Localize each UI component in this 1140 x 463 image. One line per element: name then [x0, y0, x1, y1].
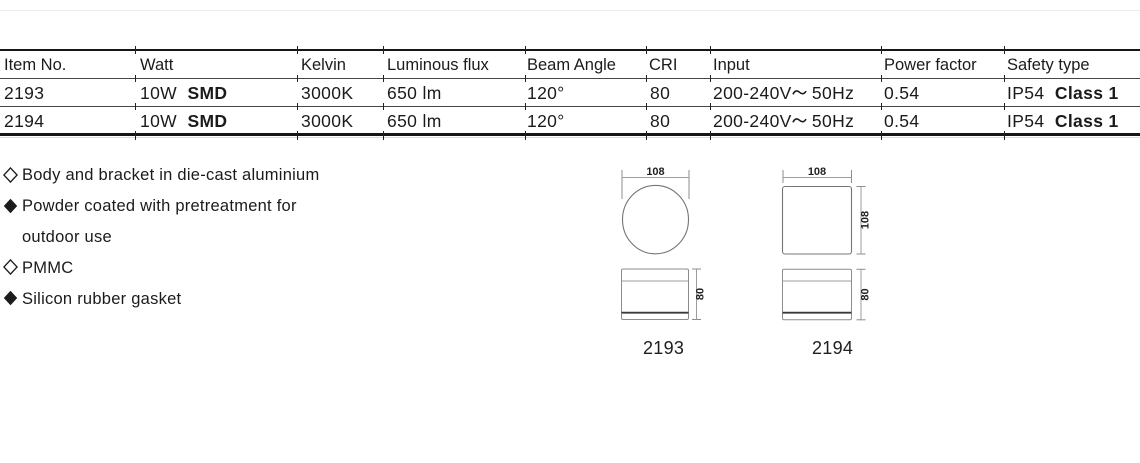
- svg-text:2193: 2193: [643, 338, 684, 358]
- svg-text:108: 108: [646, 166, 664, 178]
- svg-text:80: 80: [860, 288, 872, 300]
- svg-text:108: 108: [860, 211, 872, 229]
- svg-text:2194: 2194: [812, 338, 853, 358]
- svg-text:80: 80: [695, 288, 707, 300]
- svg-text:108: 108: [808, 166, 826, 178]
